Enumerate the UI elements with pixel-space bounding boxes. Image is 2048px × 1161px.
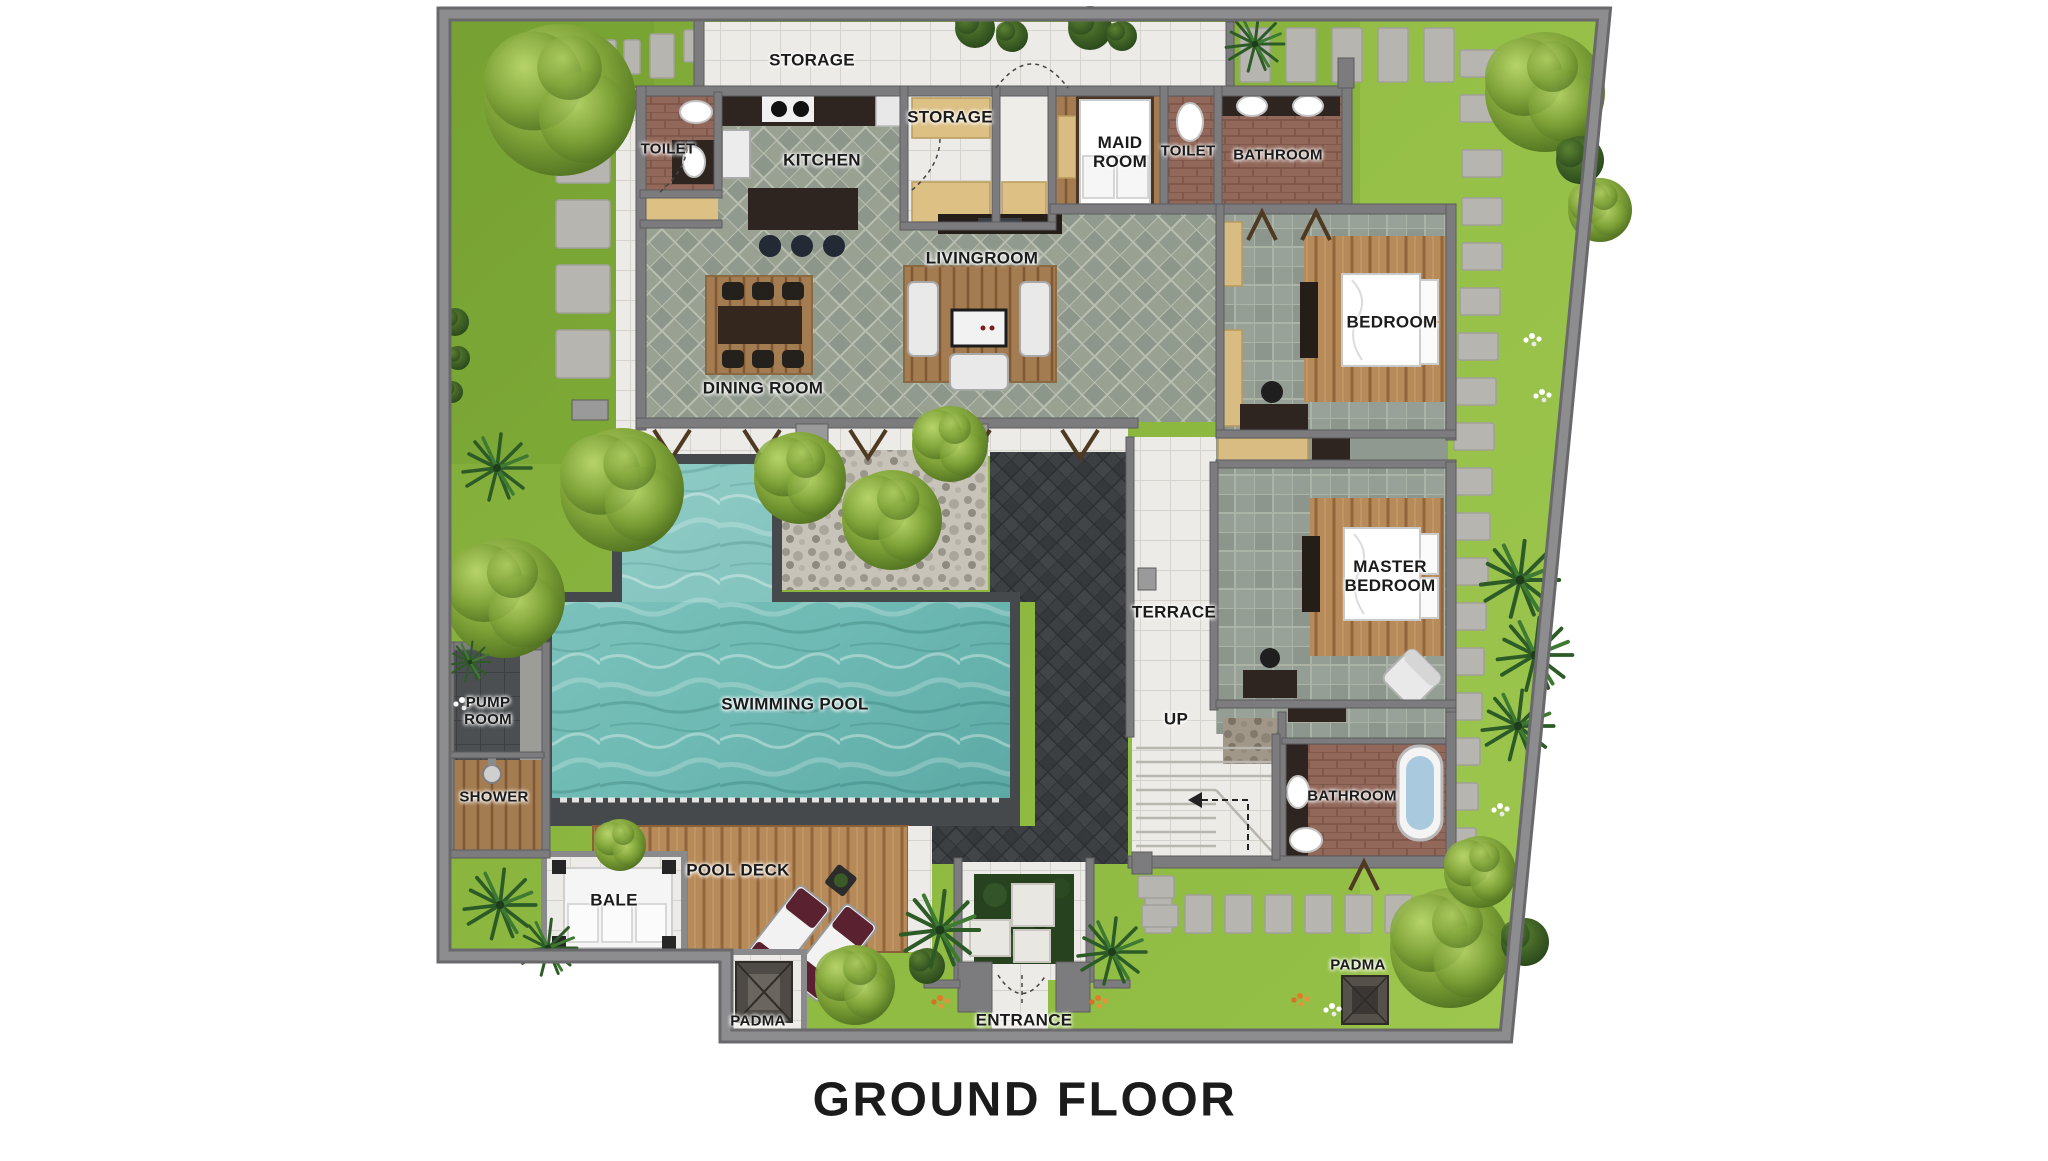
label-padma-right: PADMA [1330,958,1385,975]
label-terrace: TERRACE [1132,602,1216,621]
floor-plan-drawing [0,0,2048,1161]
label-dining-room: DINING ROOM [703,378,823,397]
label-pool-deck: POOL DECK [686,860,789,879]
label-entrance: ENTRANCE [976,1010,1073,1029]
label-toilet-2: TOILET [1161,144,1216,161]
label-bathroom-bottom: BATHROOM [1307,789,1397,806]
label-toilet-top: TOILET [641,142,696,159]
label-master-bedroom: MASTER BEDROOM [1315,557,1465,595]
floor-plan-page: STORAGE TOILET KITCHEN STORAGE MAID ROOM… [0,0,2048,1161]
label-storage-top: STORAGE [769,50,855,69]
label-maid-room: MAID ROOM [1077,133,1163,171]
label-storage-small: STORAGE [907,107,993,126]
page-title: GROUND FLOOR [813,1073,1238,1128]
entrance-pillar-left [958,962,992,1012]
label-livingroom: LIVINGROOM [926,248,1039,267]
label-padma-left: PADMA [730,1014,785,1031]
label-bathroom-top: BATHROOM [1233,148,1323,165]
label-swimming-pool: SWIMMING POOL [721,694,868,713]
label-up: UP [1164,709,1188,728]
label-pump-room: PUMP ROOM [450,695,526,729]
padma-shrine-right [1342,976,1388,1024]
label-bedroom: BEDROOM [1347,312,1438,331]
label-shower: SHOWER [459,790,528,807]
label-bale: BALE [590,890,637,909]
label-kitchen: KITCHEN [783,150,861,169]
